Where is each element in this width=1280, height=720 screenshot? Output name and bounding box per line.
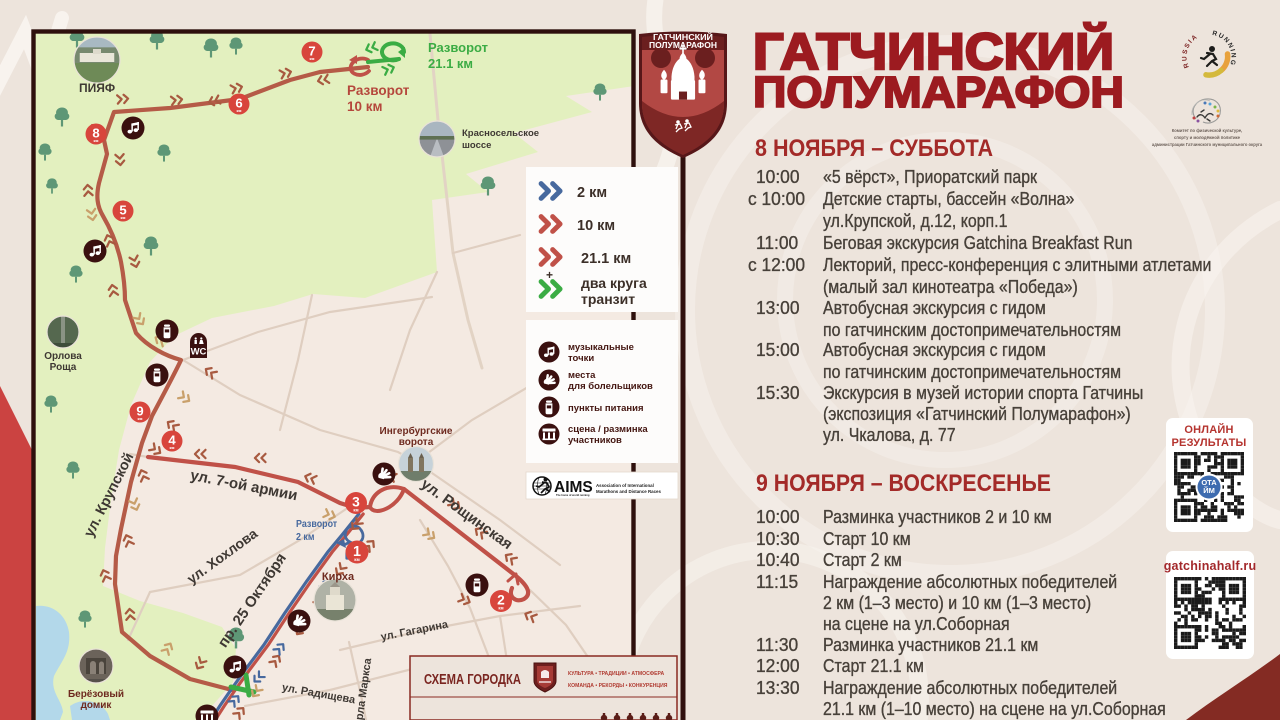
svg-text:ЙМ: ЙМ (1203, 486, 1215, 495)
svg-text:Беговая экскурсия Gatchina Bre: Беговая экскурсия Gatchina Breakfast Run (823, 232, 1132, 253)
svg-text:Разминка участников 2 и 10 км: Разминка участников 2 и 10 км (823, 506, 1052, 527)
svg-text:км: км (170, 445, 175, 450)
svg-text:11:15: 11:15 (756, 572, 798, 593)
svg-text:участников: участников (568, 435, 622, 446)
svg-text:(малый зал кинотеатра «Победа»: (малый зал кинотеатра «Победа») (823, 276, 1078, 297)
svg-text:Association of International: Association of International (596, 483, 654, 488)
svg-text:домик: домик (81, 700, 113, 711)
svg-text:Автобусная экскурсия с гидом: Автобусная экскурсия с гидом (823, 297, 1046, 318)
svg-text:км: км (237, 108, 242, 113)
svg-text:Ингербургские: Ингербургские (380, 425, 453, 437)
svg-text:15:00: 15:00 (756, 340, 800, 361)
svg-text:10:00: 10:00 (756, 167, 800, 188)
svg-text:КУЛЬТУРА • ТРАДИЦИИ • АТМО: КУЛЬТУРА • ТРАДИЦИИ • АТМОСФЕРА (568, 671, 664, 677)
svg-text:музыкальные: музыкальные (568, 342, 634, 353)
svg-text:8 НОЯБРЯ – СУББОТА: 8 НОЯБРЯ – СУББОТА (755, 135, 993, 162)
svg-text:12:00: 12:00 (756, 656, 800, 677)
svg-text:10:30: 10:30 (756, 529, 800, 550)
svg-text:«5 вёрст», Приоратский парк: «5 вёрст», Приоратский парк (823, 166, 1037, 187)
svg-text:по гатчинским достопримечатель: по гатчинским достопримечательностям (823, 319, 1121, 340)
svg-text:13:30: 13:30 (756, 678, 800, 699)
svg-text:сцена / разминка: сцена / разминка (568, 424, 648, 435)
svg-text:Экскурсия в музей истории спор: Экскурсия в музей истории спорта Гатчины (823, 382, 1143, 403)
svg-text:WC: WC (191, 347, 207, 358)
svg-text:с 12:00: с 12:00 (748, 255, 805, 276)
svg-text:транзит: транзит (581, 291, 635, 307)
svg-text:Лекторий, пресс-конференция с: Лекторий, пресс-конференция с элитными а… (823, 254, 1211, 275)
svg-text:15:30: 15:30 (756, 383, 800, 404)
svg-text:точки: точки (568, 353, 594, 364)
svg-text:gatchinahalf.ru: gatchinahalf.ru (1164, 559, 1257, 573)
svg-text:ОНЛАЙН: ОНЛАЙН (1184, 423, 1233, 436)
svg-text:10:40: 10:40 (756, 550, 800, 571)
svg-text:(экспозиция «Гатчинский Полума: (экспозиция «Гатчинский Полумарафон») (823, 403, 1131, 424)
svg-text:км: км (353, 508, 358, 513)
svg-text:места: места (568, 370, 596, 381)
svg-text:21.1 км: 21.1 км (581, 251, 631, 267)
svg-text:на сцене на ул.Соборная: на сцене на ул.Соборная (823, 613, 1010, 634)
svg-text:21.1 км (1–10 место) на сцене: 21.1 км (1–10 место) на сцене на ул.Собо… (823, 698, 1166, 719)
svg-text:Орлова: Орлова (44, 351, 82, 362)
svg-text:Детские старты, бассейн «Волна: Детские старты, бассейн «Волна» (823, 188, 1074, 209)
svg-text:9 НОЯБРЯ – ВОСКРЕСЕНЬЕ: 9 НОЯБРЯ – ВОСКРЕСЕНЬЕ (756, 470, 1051, 497)
svg-text:с 10:00: с 10:00 (748, 189, 805, 210)
svg-text:СХЕМА ГОРОДКА: СХЕМА ГОРОДКА (424, 672, 521, 688)
svg-text:км: км (138, 416, 143, 421)
svg-text:администрации Гатчинского муни: администрации Гатчинского муниципального… (1152, 142, 1263, 147)
svg-text:Кирха: Кирха (322, 571, 355, 583)
svg-text:21.1 км: 21.1 км (428, 56, 473, 71)
svg-text:Разминка участников 21.1 км: Разминка участников 21.1 км (823, 634, 1038, 655)
svg-text:Старт 2 км: Старт 2 км (823, 549, 902, 570)
svg-text:13:00: 13:00 (756, 298, 800, 319)
svg-text:Разворот: Разворот (428, 40, 488, 55)
svg-text:2 км: 2 км (577, 185, 607, 201)
svg-text:10:00: 10:00 (756, 507, 800, 528)
svg-text:ворота: ворота (399, 437, 434, 448)
svg-text:Красносельское: Красносельское (462, 128, 539, 139)
svg-text:для болельщиков: для болельщиков (568, 381, 653, 392)
svg-text:км: км (310, 56, 315, 61)
svg-text:Награждение абсолютных победит: Награждение абсолютных победителей (823, 677, 1117, 698)
svg-text:10 км: 10 км (347, 99, 383, 114)
svg-text:пункты питания: пункты питания (568, 403, 644, 414)
svg-text:спорту и молодёжной политике: спорту и молодёжной политике (1174, 135, 1241, 140)
svg-text:РЕЗУЛЬТАТЫ: РЕЗУЛЬТАТЫ (1172, 437, 1247, 449)
svg-text:км: км (121, 215, 126, 220)
svg-text:км: км (498, 606, 503, 611)
svg-text:ул.Крупской, д.12, корп.1: ул.Крупской, д.12, корп.1 (823, 210, 1007, 231)
svg-text:по гатчинским достопримечатель: по гатчинским достопримечательностям (823, 361, 1121, 382)
svg-text:км: км (354, 557, 359, 562)
svg-text:11:30: 11:30 (756, 635, 798, 656)
svg-text:Разворот: Разворот (296, 518, 337, 530)
svg-text:Старт 21.1 км: Старт 21.1 км (823, 655, 924, 676)
svg-text:10 км: 10 км (577, 218, 615, 234)
svg-text:The home of world running: The home of world running (556, 493, 590, 497)
svg-text:ул. Чкалова, д. 77: ул. Чкалова, д. 77 (823, 424, 956, 445)
svg-text:Роща: Роща (50, 362, 77, 373)
svg-text:ПОЛУМАРАФОН: ПОЛУМАРАФОН (753, 68, 1124, 117)
svg-text:Marathons and Distance Races: Marathons and Distance Races (596, 489, 661, 494)
svg-text:ПОЛУМАРАФОН: ПОЛУМАРАФОН (649, 40, 717, 50)
svg-text:ПИЯФ: ПИЯФ (79, 81, 115, 95)
svg-text:2 км: 2 км (296, 531, 315, 543)
svg-text:Автобусная экскурсия с гидом: Автобусная экскурсия с гидом (823, 339, 1046, 360)
svg-text:Старт 10 км: Старт 10 км (823, 528, 911, 549)
svg-text:КОМАНДА • РЕКОРДЫ • КОНКУР: КОМАНДА • РЕКОРДЫ • КОНКУРЕНЦИЯ (568, 683, 668, 689)
svg-text:Берёзовый: Берёзовый (68, 689, 124, 700)
svg-text:шоссе: шоссе (462, 140, 491, 151)
svg-text:два круга: два круга (581, 275, 647, 291)
svg-text:км: км (94, 138, 99, 143)
svg-text:Разворот: Разворот (347, 83, 410, 98)
svg-text:Комитет по физической культуре: Комитет по физической культуре, (1172, 128, 1243, 133)
svg-text:11:00: 11:00 (756, 233, 798, 254)
svg-text:Награждение абсолютных победит: Награждение абсолютных победителей (823, 571, 1117, 592)
svg-text:2 км (1–3 место) и 10 км (1–3: 2 км (1–3 место) и 10 км (1–3 место) (823, 592, 1091, 613)
